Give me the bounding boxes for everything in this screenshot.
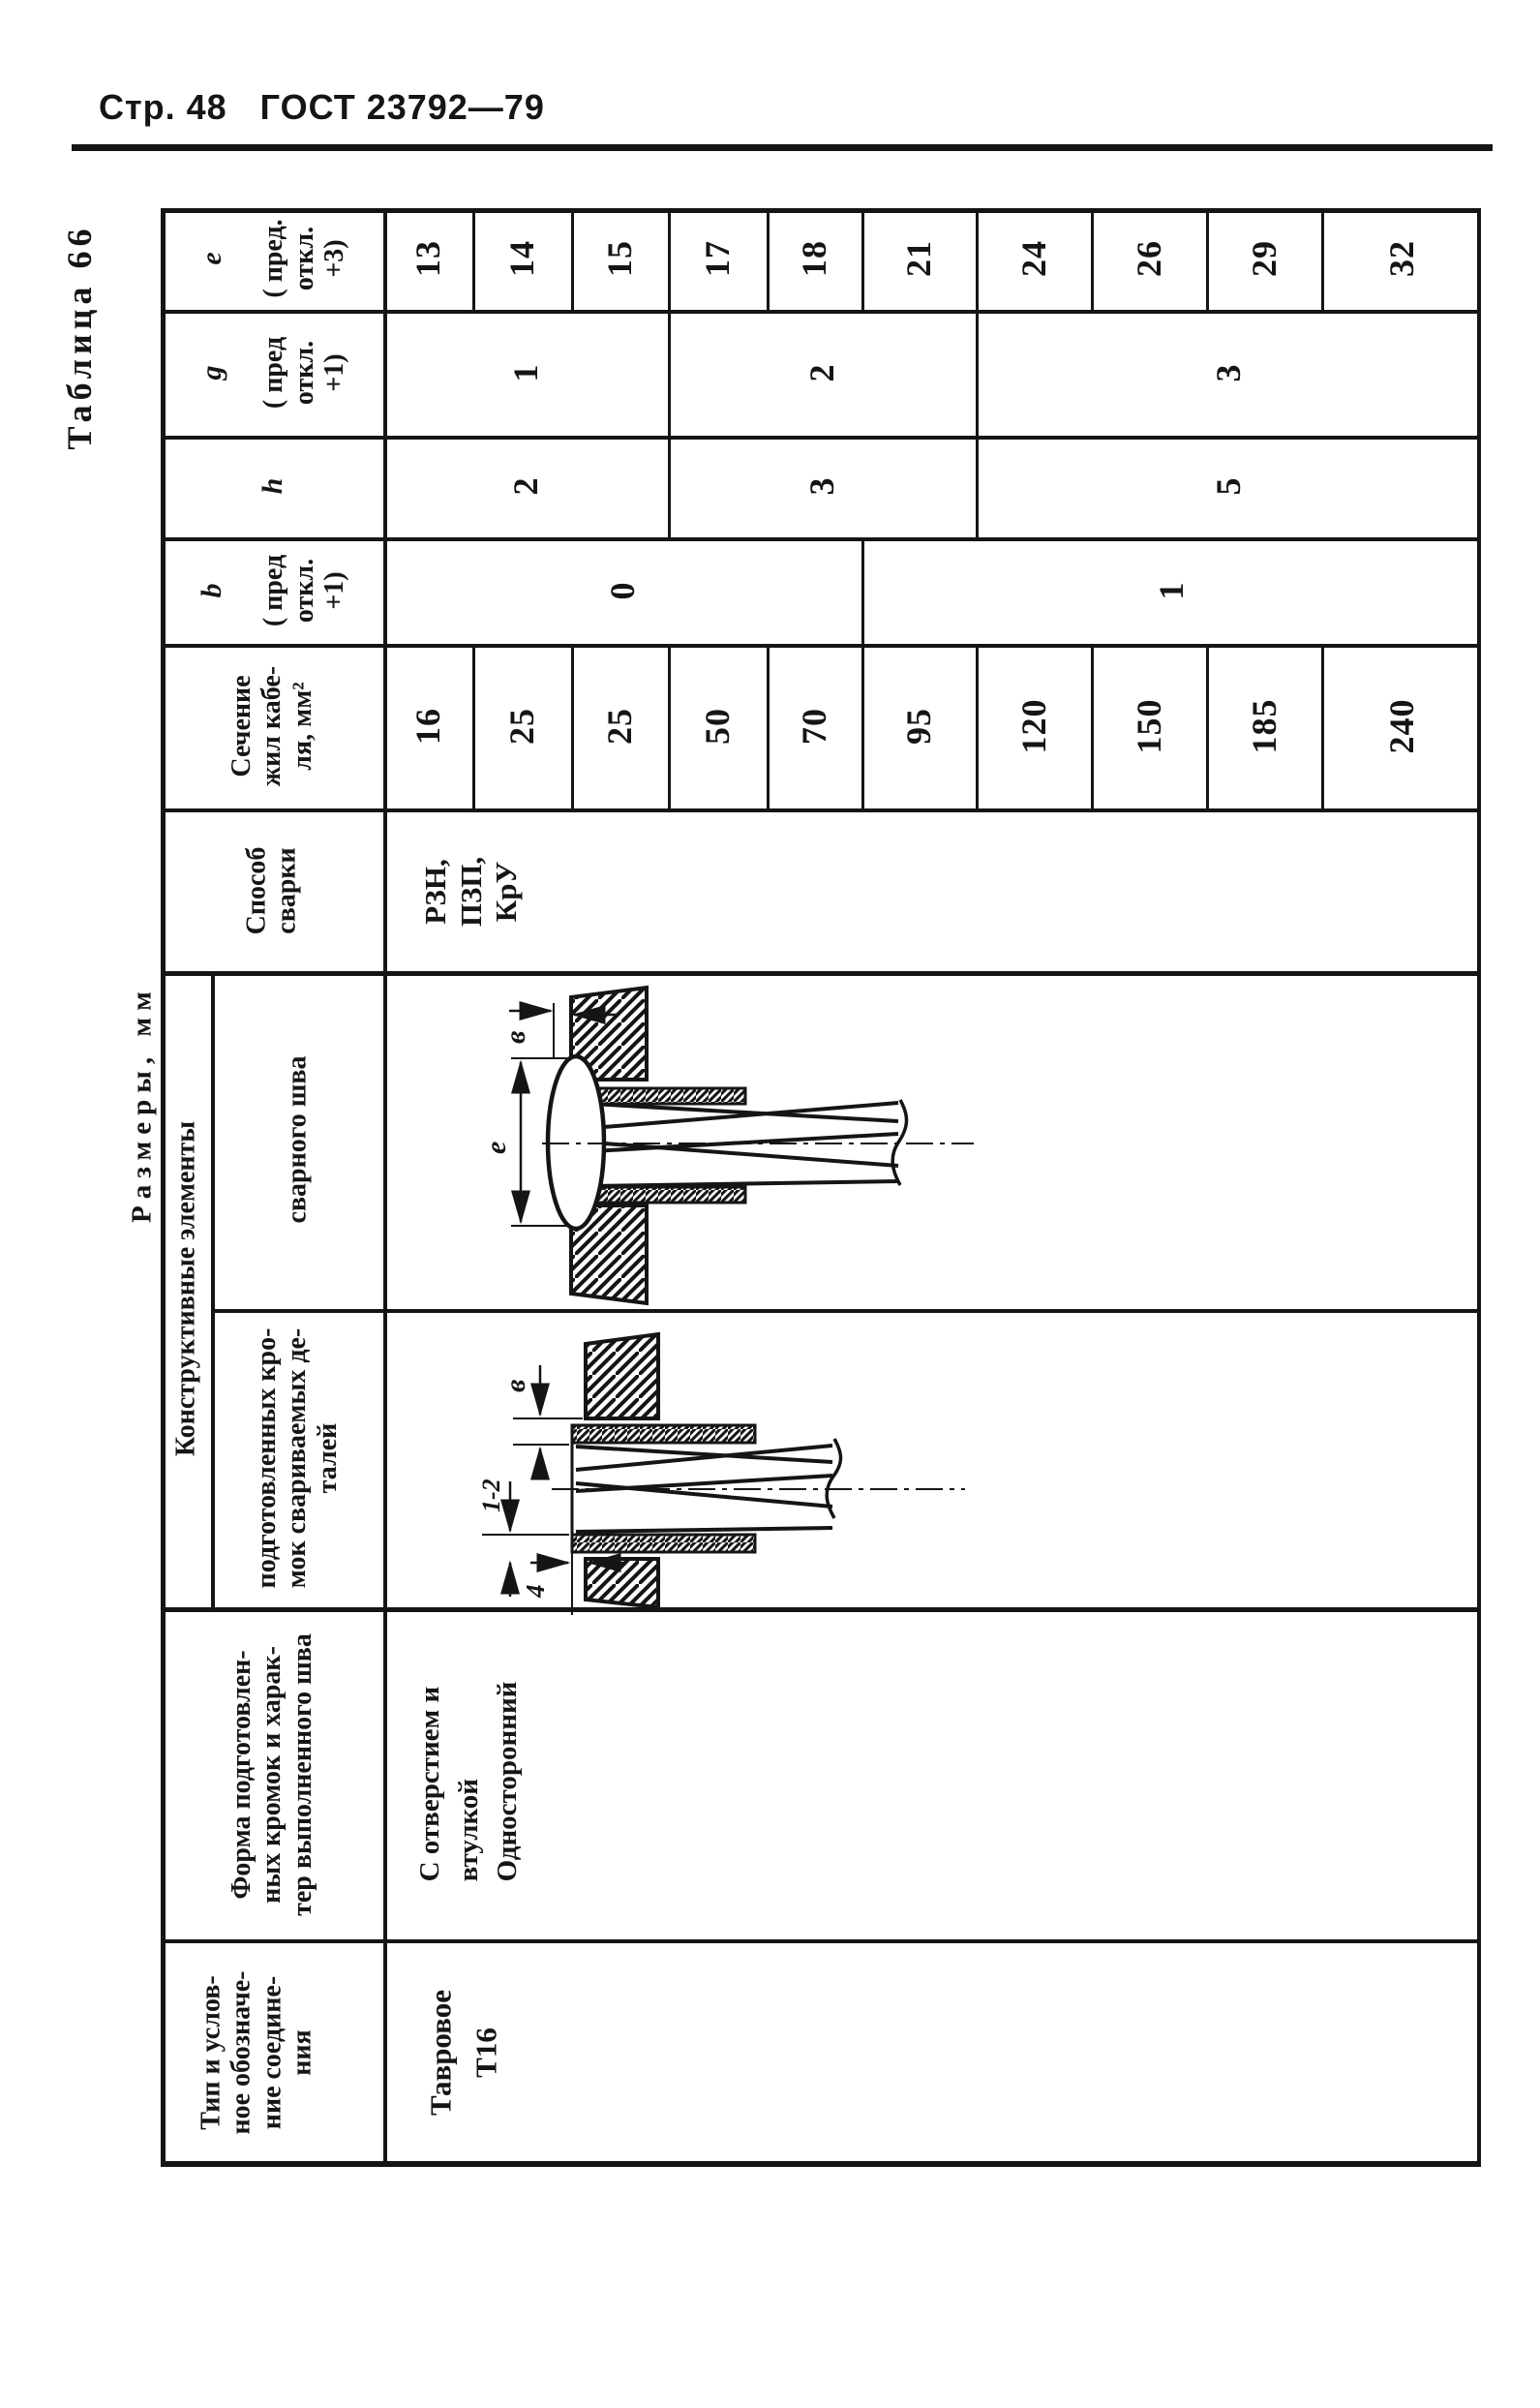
cell-section-9: 240	[1381, 699, 1422, 754]
dim-e-tolerance: ( пред. откл. +3)	[258, 219, 349, 297]
table-grid-line	[1091, 644, 1094, 808]
cell-section-7: 150	[1129, 699, 1169, 754]
standard-number: ГОСТ 23792—79	[260, 87, 545, 127]
cell-e-8: 29	[1244, 240, 1284, 277]
dim-g-letter: g	[196, 337, 228, 409]
cell-b-group-0: 0	[602, 582, 643, 600]
cable-break-line	[827, 1439, 840, 1518]
sleeve-lower	[572, 1535, 755, 1552]
cell-e-1: 14	[501, 240, 542, 277]
table-grid-line	[668, 208, 671, 537]
plate-upper	[586, 1334, 658, 1418]
table-grid-line	[161, 208, 166, 2166]
units-note: Размеры, мм	[127, 985, 159, 1223]
table-grid-line	[161, 1607, 1481, 1612]
table-grid-line	[211, 971, 215, 1607]
table-grid-line	[1321, 644, 1324, 808]
table-grid-line	[161, 808, 1481, 812]
page-number: Стр. 48	[99, 87, 227, 127]
header-g: g ( пред откл. +1)	[166, 337, 380, 409]
table-grid-line	[861, 537, 864, 644]
table-grid-line	[211, 1309, 1481, 1313]
table-grid-line	[161, 1939, 1481, 1943]
header-sub-weld: сварного шва	[282, 1055, 312, 1223]
table-grid-line	[472, 208, 475, 310]
header-method: Способ сварки	[242, 847, 303, 935]
table-grid-line	[161, 644, 1481, 648]
table-grid-line	[1206, 644, 1209, 808]
cell-section-8: 185	[1244, 699, 1284, 754]
dim-label-b: в	[499, 1380, 531, 1392]
cell-type-value: Тавровое Т16	[419, 1990, 509, 2116]
cell-section-1: 25	[501, 708, 542, 745]
header-type: Тип и услов- ное обозначе- ние соедине- …	[196, 1971, 317, 2135]
header-b: b ( пред откл. +1)	[166, 555, 380, 626]
cell-section-6: 120	[1013, 699, 1054, 754]
table-grid-line	[161, 537, 1481, 541]
cell-g-group-1: 2	[801, 364, 842, 382]
table-grid-line	[383, 208, 387, 2161]
sleeve-upper	[572, 1425, 755, 1443]
dim-h-letter: h	[257, 478, 289, 495]
cell-e-5: 21	[898, 240, 939, 277]
dim-label-b: в	[499, 1031, 531, 1044]
cell-e-6: 24	[1013, 240, 1054, 277]
table-grid-line	[161, 436, 1481, 440]
sleeve-upper	[590, 1088, 745, 1104]
cell-e-2: 15	[599, 240, 640, 277]
header-h: h	[226, 478, 319, 495]
table-grid-line	[472, 644, 475, 808]
table-grid-line	[1477, 208, 1481, 2165]
table-grid-line	[767, 644, 770, 808]
weld-seam-diagram: в е	[482, 976, 985, 1313]
table-grid-line	[161, 2161, 1481, 2167]
table-grid-line	[1206, 208, 1209, 310]
cell-section-5: 95	[898, 708, 939, 745]
cell-section-4: 70	[794, 708, 834, 745]
header-form: Форма подготовлен- ных кромок и харак- т…	[226, 1633, 317, 1916]
cell-section-2: 25	[599, 708, 640, 745]
dim-b-letter: b	[196, 555, 228, 626]
header-sub-edges: подготовленных кро- мок свариваемых де- …	[252, 1328, 343, 1589]
page-header: Стр. 48ГОСТ 23792—79	[99, 87, 578, 128]
table-grid-line	[161, 971, 1481, 976]
table-grid-line	[571, 644, 574, 808]
dim-label-e: е	[480, 1142, 512, 1154]
cell-section-0: 16	[408, 708, 448, 745]
table-grid-line	[161, 310, 1481, 314]
cell-h-group-2: 5	[1208, 477, 1249, 496]
dim-e-letter: е	[196, 219, 228, 297]
table-grid-line	[861, 208, 864, 310]
table-grid-line	[767, 208, 770, 310]
cell-method-value: РЗН, ПЗП, КрУ	[418, 857, 525, 927]
dim-b-tolerance: ( пред откл. +1)	[258, 555, 349, 626]
table-grid-line	[1321, 208, 1324, 310]
table-grid-line	[668, 644, 671, 808]
cell-b-group-1: 1	[1151, 582, 1192, 600]
header-section: Сечение жил кабе- ля, мм²	[226, 666, 317, 786]
table-grid-line	[976, 644, 979, 808]
table-grid-line	[161, 208, 1481, 213]
table-grid-line	[1091, 208, 1094, 310]
header-constructive-group: Конструктивные элементы	[170, 1121, 200, 1456]
header-e: е ( пред. откл. +3)	[166, 219, 380, 297]
table-grid-line	[861, 644, 864, 808]
dim-label-gap: 1-2	[477, 1478, 505, 1512]
cell-e-4: 18	[794, 240, 834, 277]
cell-section-3: 50	[697, 708, 738, 745]
cell-g-group-2: 3	[1208, 364, 1249, 382]
cell-h-group-0: 2	[505, 477, 546, 496]
cell-g-group-0: 1	[505, 364, 546, 382]
dim-label-protrusion: 4	[521, 1585, 550, 1600]
edge-preparation-diagram: в 1-2 4	[476, 1328, 980, 1619]
document-page: Стр. 48ГОСТ 23792—79 Таблица 66 Размеры,…	[0, 0, 1540, 2408]
cell-e-9: 32	[1381, 240, 1422, 277]
cell-h-group-1: 3	[801, 477, 842, 496]
dim-g-tolerance: ( пред откл. +1)	[258, 337, 349, 409]
table-caption: Таблица 66	[59, 225, 100, 450]
cell-e-3: 17	[697, 240, 738, 277]
header-rule	[72, 144, 1493, 151]
cell-e-0: 13	[408, 240, 448, 277]
plate-lower	[586, 1559, 658, 1607]
sleeve-lower	[590, 1187, 745, 1203]
table-grid-line	[976, 208, 979, 537]
cell-e-7: 26	[1129, 240, 1169, 277]
cell-form-value: С отверстием и втулкой Односторонний	[410, 1682, 527, 1882]
table-grid-line	[571, 208, 574, 310]
